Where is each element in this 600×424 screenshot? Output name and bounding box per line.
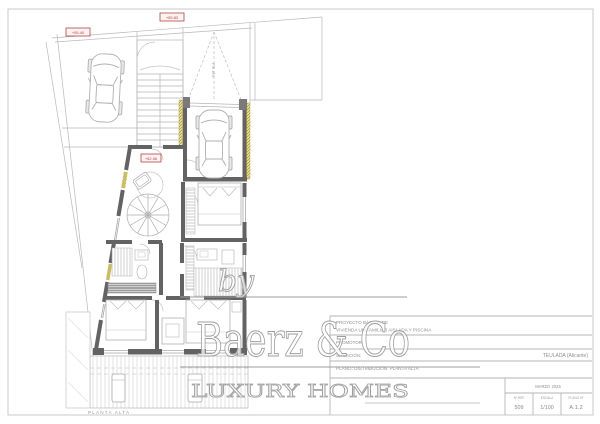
ref-value: 509	[515, 405, 524, 411]
scale-label: ESCALA	[541, 396, 554, 400]
spiral-stair-icon	[127, 194, 169, 236]
floor-plan-svg: PTE. 16%	[0, 0, 600, 424]
scale-value: 1/100	[540, 405, 554, 411]
ramp-note-label: PTE. 16%	[211, 63, 215, 78]
svg-text:+55.83: +55.83	[166, 15, 179, 20]
garage-car-icon	[196, 110, 232, 178]
watermark-by: by	[218, 264, 255, 299]
watermark-brand: Baerz & Co	[196, 313, 410, 368]
car-icon	[85, 53, 125, 123]
level-badge: +55.83	[160, 13, 184, 21]
svg-text:+52.56: +52.56	[145, 156, 158, 161]
watermark-tagline: LUXURY HOMES	[191, 381, 409, 402]
drawing-sheet: PTE. 16%	[0, 0, 600, 424]
level-badge: +52.56	[141, 154, 161, 162]
sheet-number-value: A.1.2	[569, 405, 583, 411]
svg-text:+55.40: +55.40	[72, 30, 85, 35]
plan-caption: PLANTA ALTA	[88, 410, 130, 415]
date-value: MARZO 2025	[535, 384, 561, 389]
location-value: TEULADA (Alicante)	[543, 353, 589, 359]
sheet-number-label: PLANO Nº	[568, 396, 584, 400]
level-badge: +55.40	[66, 28, 90, 36]
ref-label: Nº REF	[514, 396, 525, 400]
